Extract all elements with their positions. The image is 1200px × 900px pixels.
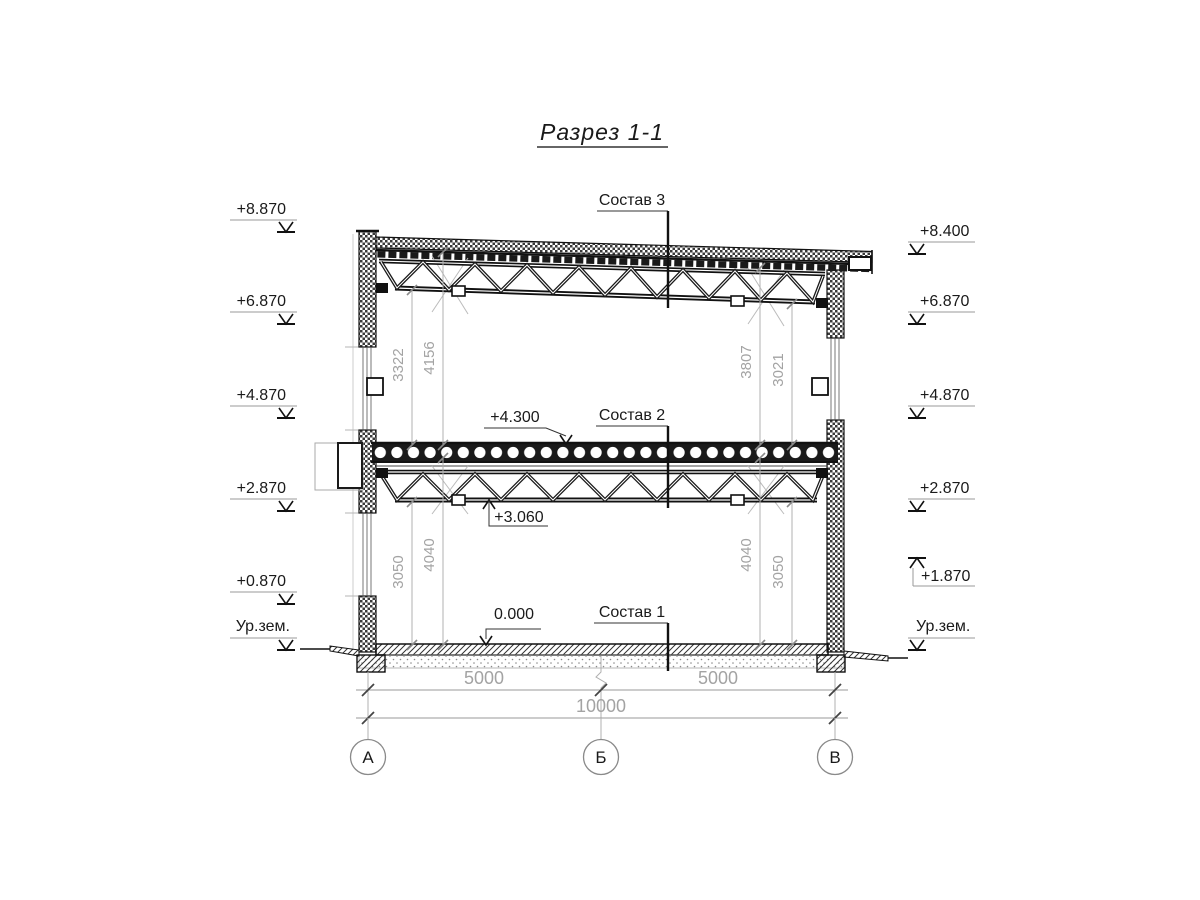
sostav1-label: Состав 1	[599, 604, 665, 621]
roof-truss-splice-right	[731, 296, 744, 306]
roof-truss-left-support	[376, 283, 388, 293]
left-wall	[315, 231, 383, 652]
sostav2-label: Состав 2	[599, 407, 665, 424]
svg-text:+8.400: +8.400	[920, 223, 969, 240]
left-mark-2870: +2.870	[230, 480, 297, 511]
axis-label-v: В	[829, 748, 840, 767]
vdim-3050-left: 3050	[390, 555, 407, 588]
left-wall-panel-top	[359, 231, 376, 347]
vdim-3807: 3807	[738, 345, 755, 378]
vdim-3050-right: 3050	[770, 555, 787, 588]
vdim-3322: 3322	[390, 348, 407, 381]
svg-text:+6.870: +6.870	[237, 293, 286, 310]
right-mark-1870: +1.870	[908, 558, 975, 586]
svg-text:+6.870: +6.870	[920, 293, 969, 310]
vdim-4040-right: 4040	[738, 538, 755, 571]
elevation-marks-right: +8.400 +6.870 +4.870 +2.870 +1.870	[908, 223, 975, 650]
left-mark-0870: +0.870	[230, 573, 297, 604]
truss-bottom-level: +3.060	[494, 509, 543, 526]
title-block: Разрез 1-1	[537, 119, 668, 147]
left-mark-ground: Ур.зем.	[230, 618, 297, 650]
vdim-3021: 3021	[770, 353, 787, 386]
floor-truss-splice-left	[452, 495, 465, 505]
page-title: Разрез 1-1	[540, 119, 664, 145]
svg-text:+4.870: +4.870	[237, 387, 286, 404]
right-wall-glazing	[831, 338, 839, 420]
floor-truss-splice-right	[731, 495, 744, 505]
drawing-canvas: Разрез 1-1	[0, 0, 1200, 900]
roof-truss-right-support	[816, 298, 828, 308]
svg-text:+1.870: +1.870	[921, 568, 970, 585]
right-mark-6870: +6.870	[908, 293, 975, 324]
svg-text:+0.870: +0.870	[237, 573, 286, 590]
left-mark-8870: +8.870	[230, 201, 297, 232]
vdim-4156: 4156	[421, 341, 438, 374]
left-louver-box	[367, 378, 383, 395]
right-mark-ground: Ур.зем.	[908, 618, 975, 650]
svg-text:+4.870: +4.870	[920, 387, 969, 404]
roof-truss-splice-left	[452, 286, 465, 296]
right-mark-8400: +8.400	[908, 223, 975, 254]
right-mark-2870: +2.870	[908, 480, 975, 511]
vdim-4040-left: 4040	[421, 538, 438, 571]
floor-truss-right-support	[816, 468, 828, 478]
sostav3-label: Состав 3	[599, 192, 665, 209]
interior-dimension-labels: 3322 4156 3807 3021 3050 4040 4040 3050	[390, 341, 787, 588]
elevation-marks-left: +8.870 +6.870 +4.870 +2.870 +0.870	[230, 201, 297, 650]
svg-text:Ур.зем.: Ур.зем.	[916, 618, 970, 635]
dim-10000: 10000	[576, 696, 626, 716]
left-mark-4870: +4.870	[230, 387, 297, 418]
floor-truss-left-support	[376, 468, 388, 478]
roof-eave-cap	[849, 257, 871, 270]
axis-label-a: А	[362, 748, 374, 767]
right-louver-box	[812, 378, 828, 395]
dim-5000-right: 5000	[698, 668, 738, 688]
ground-floor	[300, 644, 908, 672]
svg-text:+8.870: +8.870	[237, 201, 286, 218]
axis-bubbles: А Б В	[351, 718, 853, 775]
slab-top-level: +4.300	[490, 409, 539, 426]
left-mark-6870: +6.870	[230, 293, 297, 324]
floor-level: 0.000	[494, 606, 534, 623]
dim-5000-left: 5000	[464, 668, 504, 688]
left-canopy-box	[338, 443, 362, 488]
right-foundation	[817, 655, 845, 672]
svg-text:+2.870: +2.870	[920, 480, 969, 497]
svg-text:Ур.зем.: Ур.зем.	[236, 618, 290, 635]
right-mark-4870: +4.870	[908, 387, 975, 418]
right-wall-panel-top	[827, 270, 844, 338]
svg-text:+2.870: +2.870	[237, 480, 286, 497]
axis-label-b: Б	[595, 748, 606, 767]
section-drawing: Разрез 1-1	[0, 0, 1200, 900]
right-blind-area	[844, 651, 888, 661]
left-wall-panel-bottom	[359, 596, 376, 652]
left-foundation	[357, 655, 385, 672]
left-blind-area	[330, 646, 359, 656]
